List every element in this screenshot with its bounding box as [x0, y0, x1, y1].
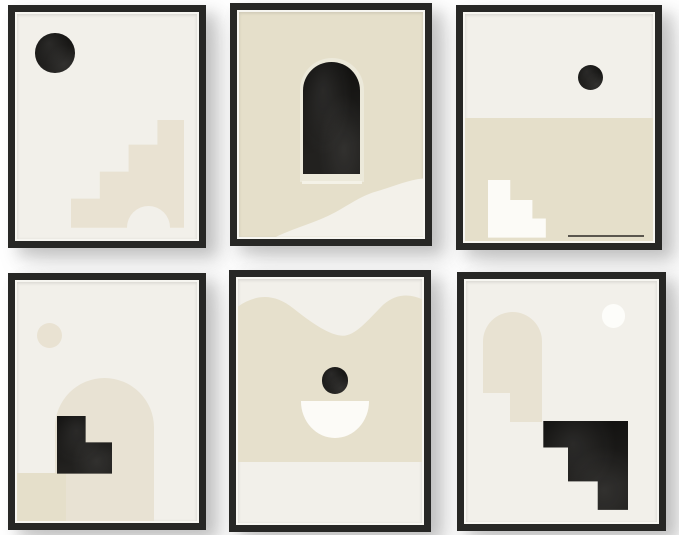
gallery-wall — [0, 0, 679, 535]
artwork-5 — [238, 279, 422, 523]
framed-print-4 — [8, 273, 206, 530]
artwork-3 — [465, 14, 653, 241]
framed-print-6 — [457, 272, 666, 531]
artwork-6 — [466, 281, 657, 522]
black-circle-icon — [322, 367, 349, 394]
white-circle-icon — [602, 304, 626, 328]
artwork-2 — [239, 12, 423, 237]
black-circle-icon — [35, 33, 75, 73]
framed-print-5 — [229, 270, 431, 532]
framed-print-3 — [456, 5, 662, 250]
beige-ground-shape — [17, 473, 66, 521]
artwork-4 — [17, 282, 197, 521]
black-arch-shape — [303, 62, 360, 175]
cream-dune-shape — [276, 176, 423, 237]
beige-column-shape — [510, 392, 542, 422]
beige-staircase-shape — [71, 120, 184, 228]
black-circle-icon — [578, 65, 603, 90]
artwork-1 — [17, 14, 197, 239]
beige-arch-shape — [483, 312, 542, 393]
dark-line-shape — [568, 235, 643, 237]
framed-print-1 — [8, 5, 206, 248]
beige-circle-icon — [37, 323, 62, 348]
framed-print-2 — [230, 3, 432, 246]
black-staircase-shape — [543, 421, 628, 510]
